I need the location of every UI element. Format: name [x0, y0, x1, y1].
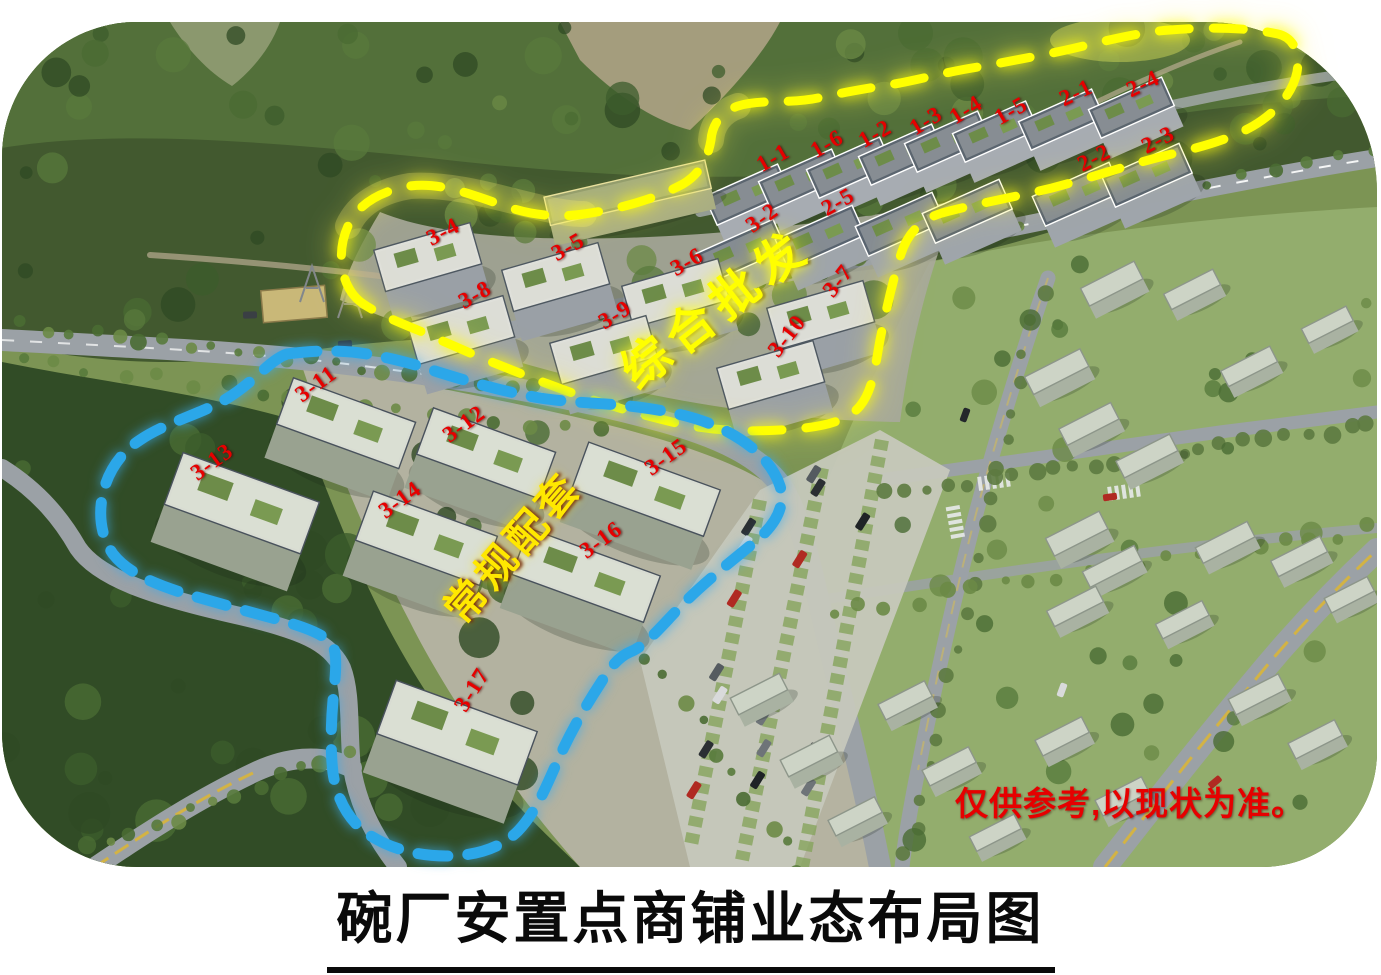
disclaimer-text: 仅供参考,以现状为准。	[955, 777, 1305, 825]
aerial-rendering	[2, 22, 1377, 867]
page-title: 碗厂安置点商铺业态布局图	[327, 874, 1055, 973]
scene-graphics	[2, 22, 1377, 867]
figure-caption: 碗厂安置点商铺业态布局图	[0, 874, 1381, 973]
shop-layout-figure: 1-11-61-21-31-41-52-12-42-22-33-22-53-43…	[0, 0, 1381, 975]
